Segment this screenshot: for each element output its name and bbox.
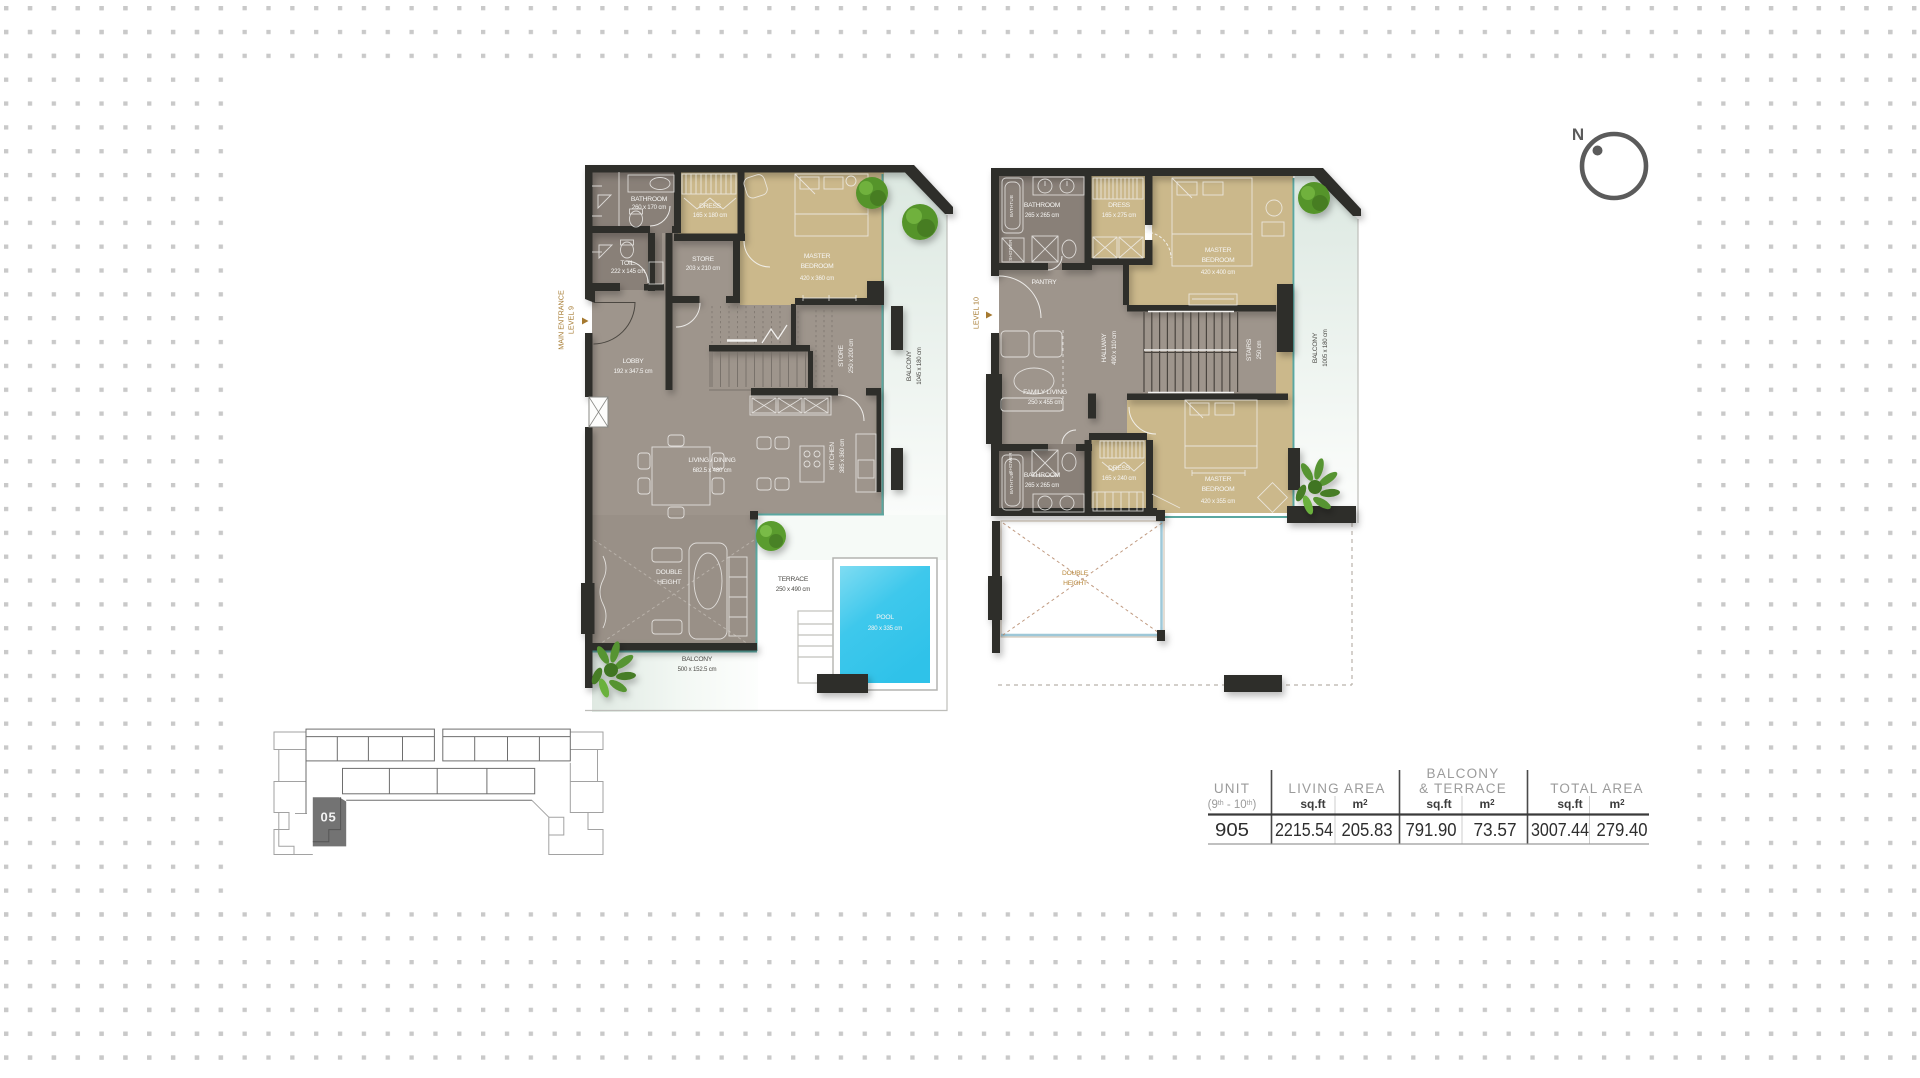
svg-text:280 x 335 cm: 280 x 335 cm [868,625,902,632]
svg-text:203 x 210 cm: 203 x 210 cm [686,265,720,272]
svg-text:TERRACE: TERRACE [778,576,809,583]
svg-text:TOIL.: TOIL. [620,260,636,267]
svg-text:420 x 355 cm: 420 x 355 cm [1201,498,1235,505]
svg-text:279.40: 279.40 [1597,820,1648,840]
svg-text:LEVEL 9: LEVEL 9 [567,306,576,334]
svg-text:UNIT: UNIT [1214,781,1250,796]
svg-text:sq.ft: sq.ft [1300,797,1325,811]
svg-text:490 x 110 cm: 490 x 110 cm [1111,331,1118,365]
svg-text:SHOWER: SHOWER [1008,239,1013,261]
svg-text:1005 x 180 cm: 1005 x 180 cm [1322,329,1329,366]
svg-text:250 cm: 250 cm [1256,340,1263,359]
svg-text:205.83: 205.83 [1342,820,1393,840]
svg-text:BATHROOM: BATHROOM [631,196,668,203]
svg-text:STAIRS: STAIRS [1246,338,1253,361]
svg-text:POOL: POOL [876,614,894,621]
svg-text:DRESS: DRESS [699,203,722,210]
svg-text:TOTAL AREA: TOTAL AREA [1550,781,1644,796]
svg-text:165 x 275 cm: 165 x 275 cm [1102,212,1136,219]
svg-text:73.57: 73.57 [1474,820,1517,840]
svg-text:192 x 347.5 cm: 192 x 347.5 cm [614,368,653,375]
svg-text:3007.44: 3007.44 [1531,820,1589,840]
svg-text:165 x 240 cm: 165 x 240 cm [1102,475,1136,482]
svg-text:05: 05 [320,810,336,825]
svg-text:222 x 145 cm: 222 x 145 cm [611,268,645,275]
svg-text:BALCONY: BALCONY [682,656,713,663]
svg-text:385 x 360 cm: 385 x 360 cm [839,439,846,473]
svg-text:LEVEL 10: LEVEL 10 [972,297,981,329]
svg-text:HALLWAY: HALLWAY [1101,333,1108,363]
svg-text:MASTER: MASTER [1205,476,1232,483]
svg-text:BEDROOM: BEDROOM [1202,486,1235,493]
svg-text:MASTER: MASTER [1205,247,1232,254]
svg-text:BEDROOM: BEDROOM [801,263,834,270]
svg-text:265 x 265 cm: 265 x 265 cm [1025,482,1059,489]
svg-text:HEIGHT: HEIGHT [657,579,681,586]
svg-text:BATHROOM: BATHROOM [1024,202,1061,209]
svg-text:LOBBY: LOBBY [622,358,644,365]
svg-text:DOUBLE: DOUBLE [656,569,683,576]
svg-text:2215.54: 2215.54 [1275,820,1333,840]
svg-text:500 x 152.5 cm: 500 x 152.5 cm [678,666,717,673]
svg-text:FAMILY LIVING: FAMILY LIVING [1023,389,1067,396]
svg-text:BALCONY: BALCONY [1312,332,1319,363]
svg-text:1045 x 180 cm: 1045 x 180 cm [916,347,923,384]
svg-text:250 x 455 cm: 250 x 455 cm [1028,399,1062,406]
svg-text:BALCONY: BALCONY [906,350,913,381]
svg-text:MAIN ENTRANCE: MAIN ENTRANCE [557,290,566,350]
svg-text:250 x 200 cm: 250 x 200 cm [848,339,855,373]
svg-text:DOUBLE: DOUBLE [1062,570,1089,577]
svg-text:KITCHEN: KITCHEN [829,442,836,470]
svg-text:BEDROOM: BEDROOM [1202,257,1235,264]
svg-text:STORE: STORE [692,256,714,263]
svg-text:sq.ft: sq.ft [1426,797,1451,811]
svg-text:BALCONY: BALCONY [1427,766,1500,781]
svg-text:PANTRY: PANTRY [1031,279,1057,286]
svg-text:260 x 170 cm: 260 x 170 cm [632,204,666,211]
svg-text:STORE: STORE [838,344,845,366]
svg-text:250 x 490 cm: 250 x 490 cm [776,586,810,593]
svg-text:165 x 180 cm: 165 x 180 cm [693,212,727,219]
svg-text:DRESS: DRESS [1108,465,1131,472]
svg-text:HEIGHT: HEIGHT [1063,580,1087,587]
svg-text:BATHTUB: BATHTUB [1009,195,1014,217]
svg-text:& TERRACE: & TERRACE [1419,781,1507,796]
svg-text:791.90: 791.90 [1406,820,1457,840]
svg-text:265 x 265 cm: 265 x 265 cm [1025,212,1059,219]
svg-text:LIVING / DINING: LIVING / DINING [688,457,735,464]
svg-text:420 x 400 cm: 420 x 400 cm [1201,269,1235,276]
svg-text:N: N [1572,125,1584,144]
svg-text:DRESS: DRESS [1108,202,1131,209]
svg-text:420 x 360 cm: 420 x 360 cm [800,275,834,282]
svg-text:682.5 x 480 cm: 682.5 x 480 cm [693,467,732,474]
svg-text:905: 905 [1215,820,1249,840]
svg-text:LIVING AREA: LIVING AREA [1288,781,1385,796]
svg-text:sq.ft: sq.ft [1557,797,1582,811]
svg-text:MASTER: MASTER [804,253,831,260]
svg-text:SHOWER: SHOWER [1008,452,1013,474]
svg-text:BATHROOM: BATHROOM [1024,472,1061,479]
svg-text:BATHTUB: BATHTUB [1009,472,1014,494]
